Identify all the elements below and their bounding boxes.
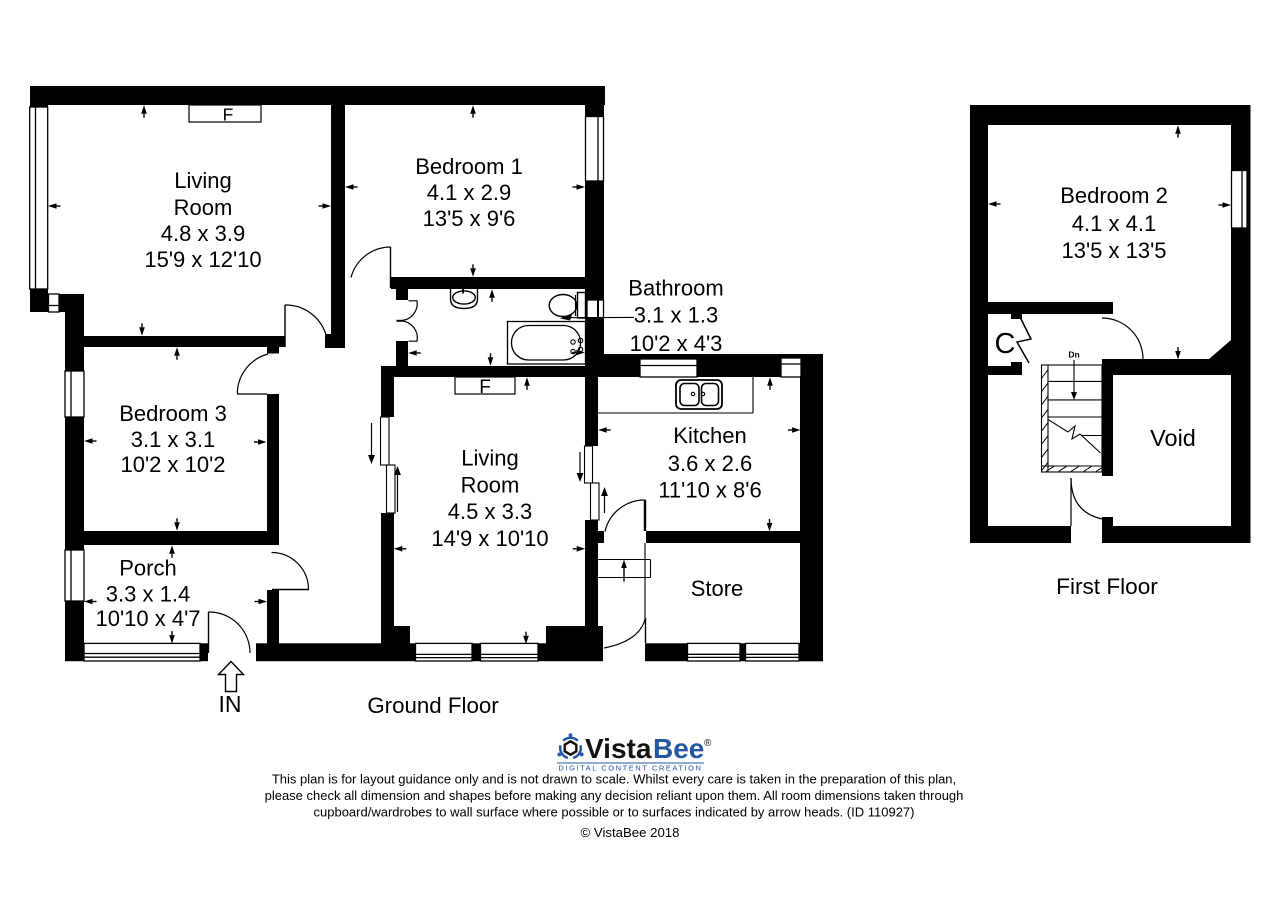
svg-text:IN: IN <box>219 691 242 717</box>
svg-text:cupboard/wardrobes to wall sur: cupboard/wardrobes to wall surface where… <box>314 805 915 820</box>
svg-text:4.8 x 3.9: 4.8 x 3.9 <box>161 221 245 246</box>
svg-text:Living: Living <box>461 446 518 471</box>
svg-text:10'2 x 4'3: 10'2 x 4'3 <box>630 331 723 356</box>
svg-text:F: F <box>479 377 491 398</box>
svg-text:3.1 x 1.3: 3.1 x 1.3 <box>634 303 718 328</box>
svg-text:Void: Void <box>1150 425 1196 451</box>
svg-text:Bathroom: Bathroom <box>628 276 723 301</box>
svg-text:© VistaBee 2018: © VistaBee 2018 <box>581 825 680 840</box>
svg-text:4.5 x 3.3: 4.5 x 3.3 <box>448 499 532 524</box>
svg-text:Kitchen: Kitchen <box>673 423 746 448</box>
svg-text:Bedroom 3: Bedroom 3 <box>119 401 227 426</box>
svg-text:11'10 x 8'6: 11'10 x 8'6 <box>658 478 761 503</box>
svg-text:Porch: Porch <box>119 556 176 581</box>
svg-text:15'9 x 12'10: 15'9 x 12'10 <box>144 247 261 272</box>
svg-text:Bedroom 1: Bedroom 1 <box>415 154 523 179</box>
svg-text:13'5 x 13'5: 13'5 x 13'5 <box>1061 238 1166 263</box>
svg-text:F: F <box>223 105 234 125</box>
svg-text:Store: Store <box>691 576 744 601</box>
svg-text:3.6 x 2.6: 3.6 x 2.6 <box>668 451 752 476</box>
svg-text:First Floor: First Floor <box>1056 574 1158 599</box>
svg-text:Vista: Vista <box>585 733 652 764</box>
svg-text:3.1 x 3.1: 3.1 x 3.1 <box>131 427 215 452</box>
svg-text:Bee: Bee <box>653 733 704 764</box>
svg-text:C: C <box>995 328 1016 360</box>
svg-text:10'2 x 10'2: 10'2 x 10'2 <box>120 452 225 477</box>
svg-text:This plan is for layout guidan: This plan is for layout guidance only an… <box>272 772 956 787</box>
svg-text:3.3 x 1.4: 3.3 x 1.4 <box>106 582 190 607</box>
svg-text:Room: Room <box>174 195 233 220</box>
svg-text:10'10 x 4'7: 10'10 x 4'7 <box>95 606 200 631</box>
svg-text:14'9 x 10'10: 14'9 x 10'10 <box>431 526 548 551</box>
svg-text:13'5 x 9'6: 13'5 x 9'6 <box>423 206 516 231</box>
svg-text:Living: Living <box>174 168 231 193</box>
svg-text:Bedroom 2: Bedroom 2 <box>1060 183 1168 208</box>
svg-text:4.1 x 2.9: 4.1 x 2.9 <box>427 180 511 205</box>
svg-text:4.1 x 4.1: 4.1 x 4.1 <box>1072 211 1156 236</box>
svg-text:Dn: Dn <box>1068 350 1079 360</box>
svg-text:®: ® <box>704 738 712 749</box>
svg-text:Ground Floor: Ground Floor <box>367 693 499 718</box>
svg-text:please check all dimension and: please check all dimension and shapes be… <box>265 788 964 803</box>
svg-text:Room: Room <box>461 472 520 497</box>
